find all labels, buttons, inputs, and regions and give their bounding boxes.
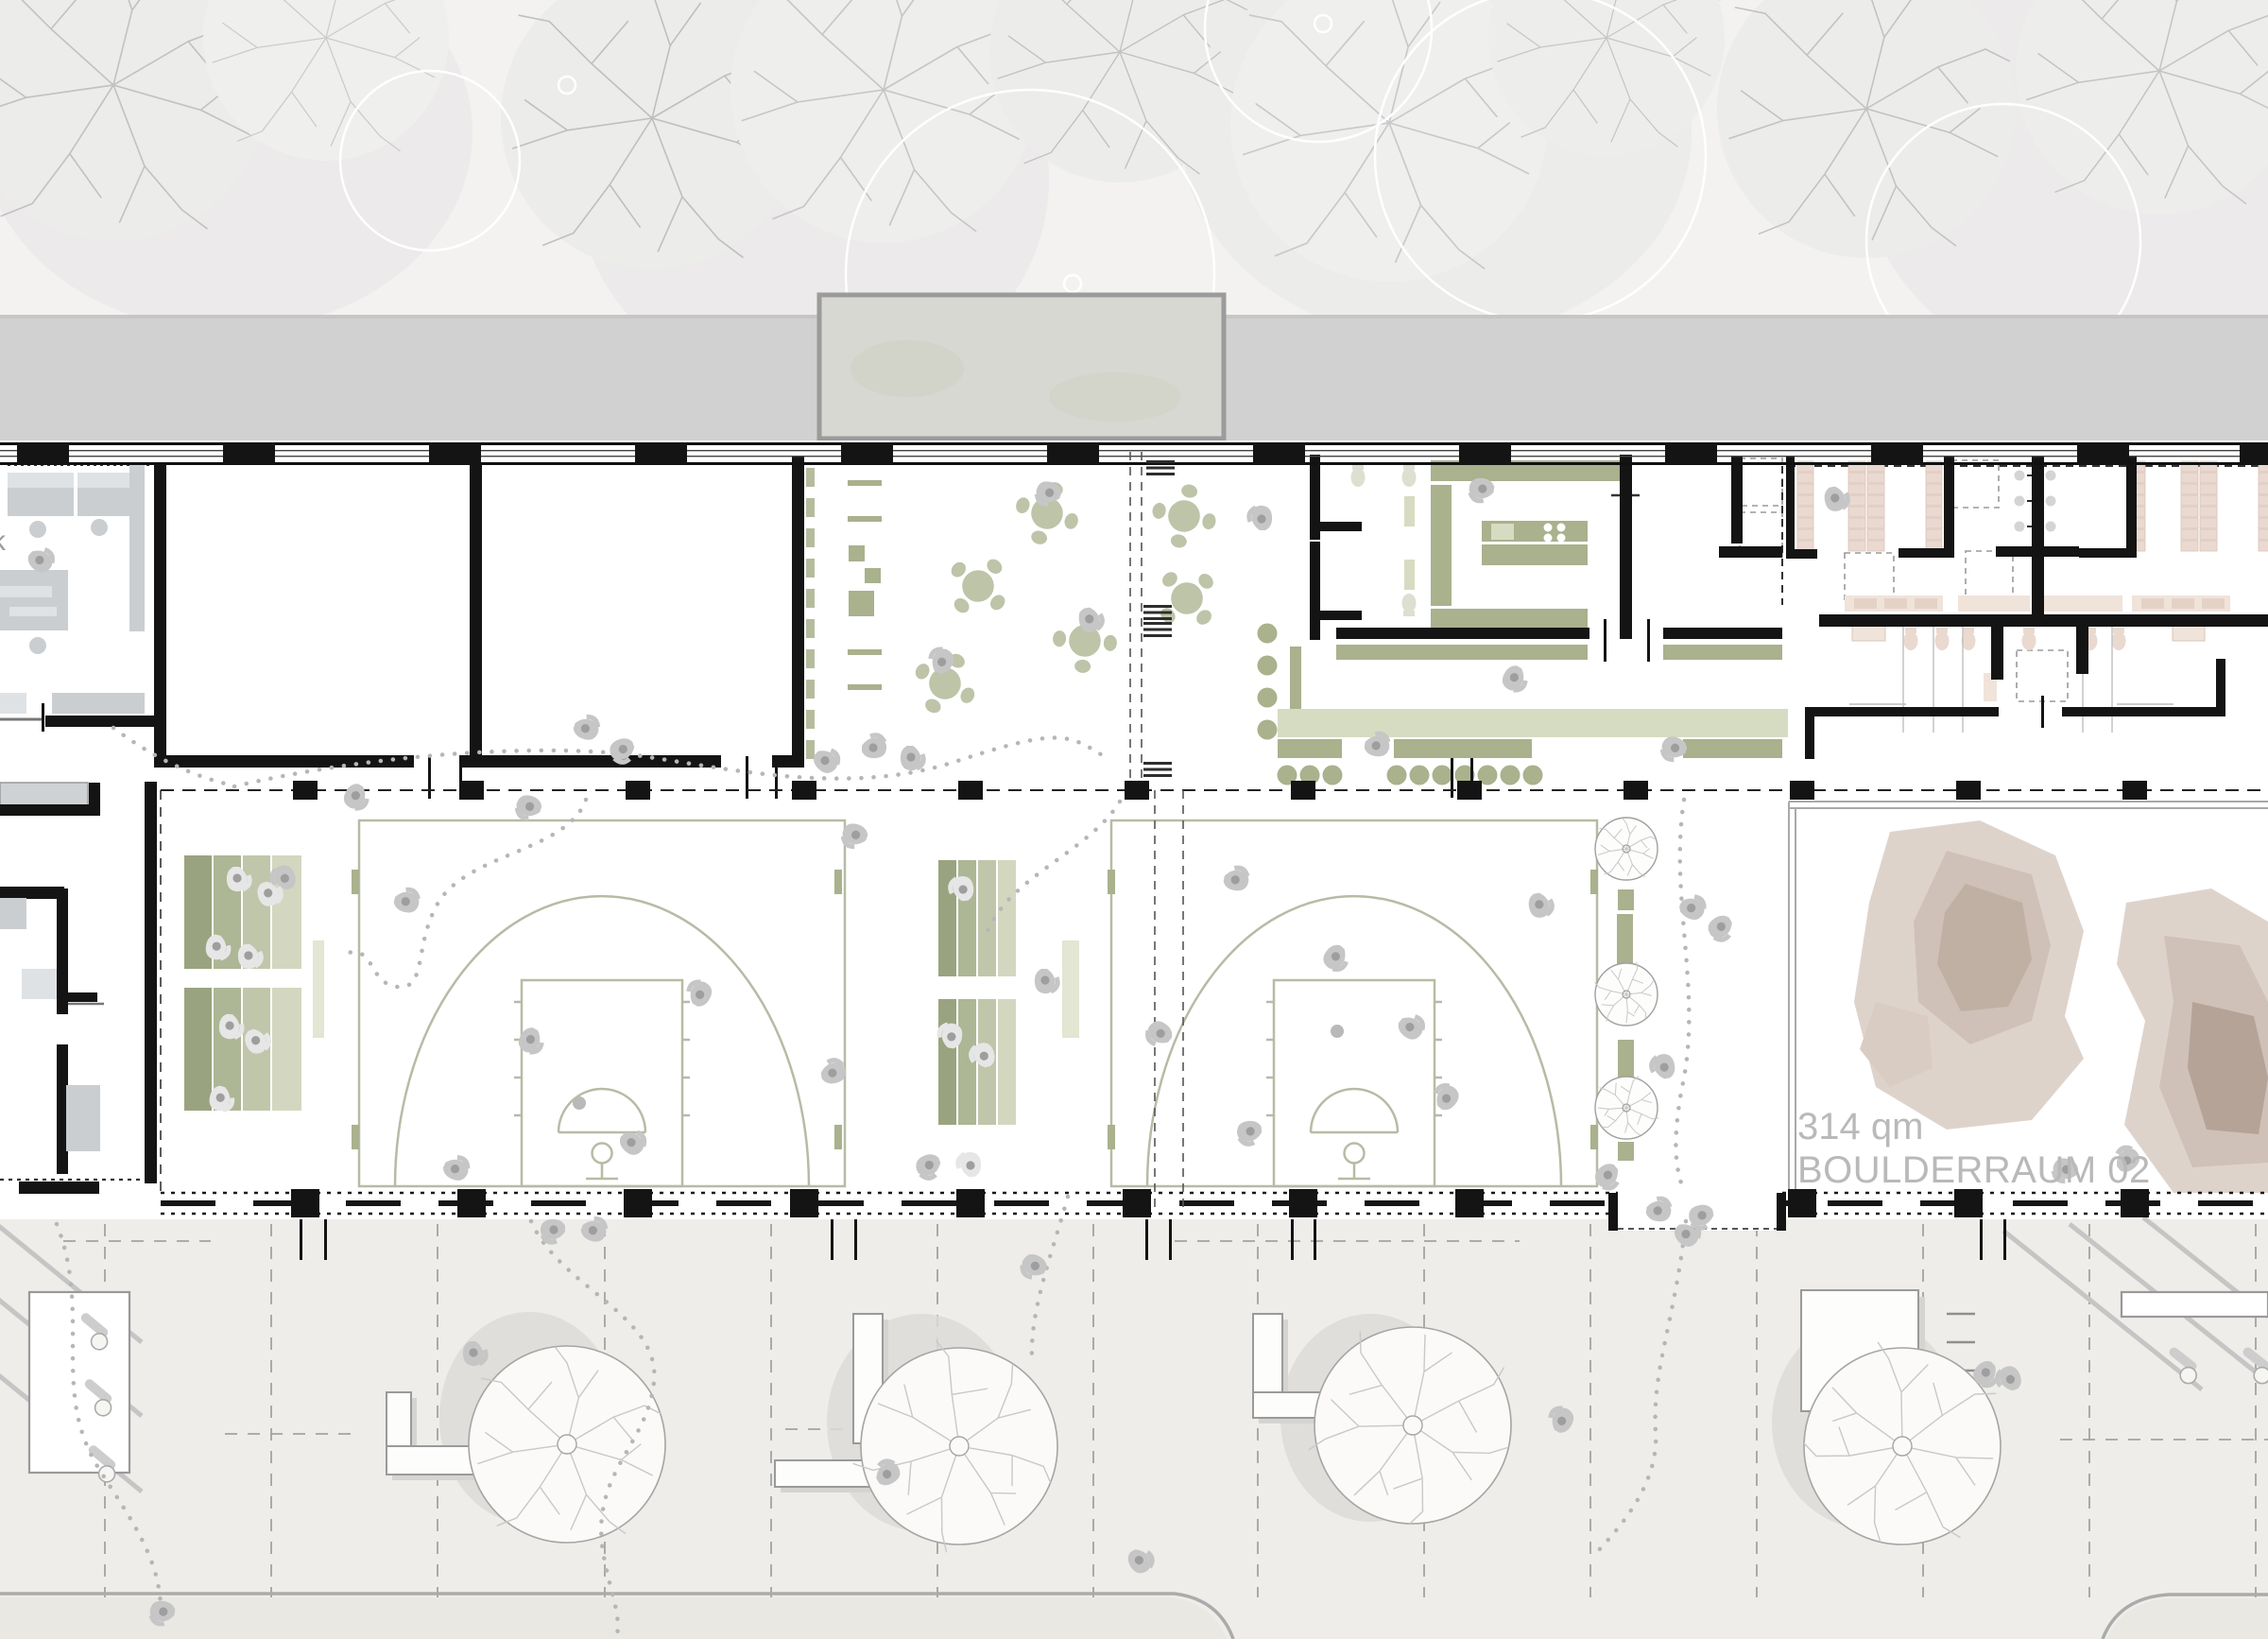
cutoff-text-label: k [0,526,6,558]
sink [1491,524,1514,540]
entrance-canopy [819,295,1224,439]
boulder-room-label: BOULDERRAUM 02 [1797,1149,2151,1192]
serving-counter [1278,709,1788,737]
boulder-area-label: 314 qm [1797,1106,1923,1148]
floor-plan-page: { "labels": { "area": "314 qm", "room": … [0,0,2268,1639]
ball [573,1096,586,1110]
ball [1331,1025,1344,1038]
site-plan-drawing [0,0,2268,1639]
